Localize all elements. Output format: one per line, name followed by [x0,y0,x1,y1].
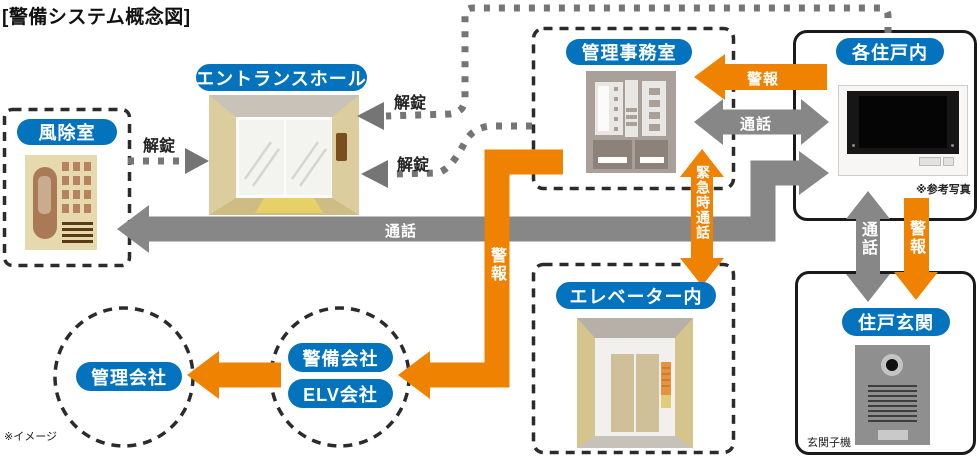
node-windbreak-room: 風除室 [17,119,117,145]
report-to-management-arrow [187,351,281,399]
node-unit-entrance: 住戸玄関 [842,308,950,336]
entrance-unit-caption: 玄関子機 [807,434,851,450]
image-note: ※イメージ [4,428,57,444]
page-title: [警備システム概念図] [2,2,191,29]
node-security-company: 警備会社 [288,343,393,372]
label-alarm-route: 警報 [487,247,508,283]
node-entrance-hall: エントランスホール [196,64,367,91]
label-call-main: 通話 [385,220,417,241]
label-emergency-call: 緊急時通話 [691,165,713,240]
security-system-diagram: [警備システム概念図] ※イメージ 風除室 エントランスホール 管理事務室 各住… [0,0,980,458]
alarm-route-to-security [398,162,563,399]
node-elevator: エレベーター内 [556,282,716,309]
node-each-unit: 各住戸内 [836,38,944,65]
node-management-office: 管理事務室 [566,39,692,65]
node-elv-company: ELV会社 [288,379,393,408]
call-main-line [117,151,829,253]
label-unlock-windbreak: 解錠 [143,132,175,156]
label-call-office-unit: 通話 [740,113,772,134]
label-alarm-unit-office: 警報 [747,68,779,89]
node-management-company: 管理会社 [76,362,182,391]
label-unlock-from-office: 解錠 [397,151,429,175]
label-call-unit-entrance: 通話 [857,221,879,257]
label-alarm-unit-entrance: 警報 [906,220,927,256]
reference-photo-note: ※参考写真 [916,181,971,197]
label-unlock-from-unit: 解錠 [394,89,426,113]
